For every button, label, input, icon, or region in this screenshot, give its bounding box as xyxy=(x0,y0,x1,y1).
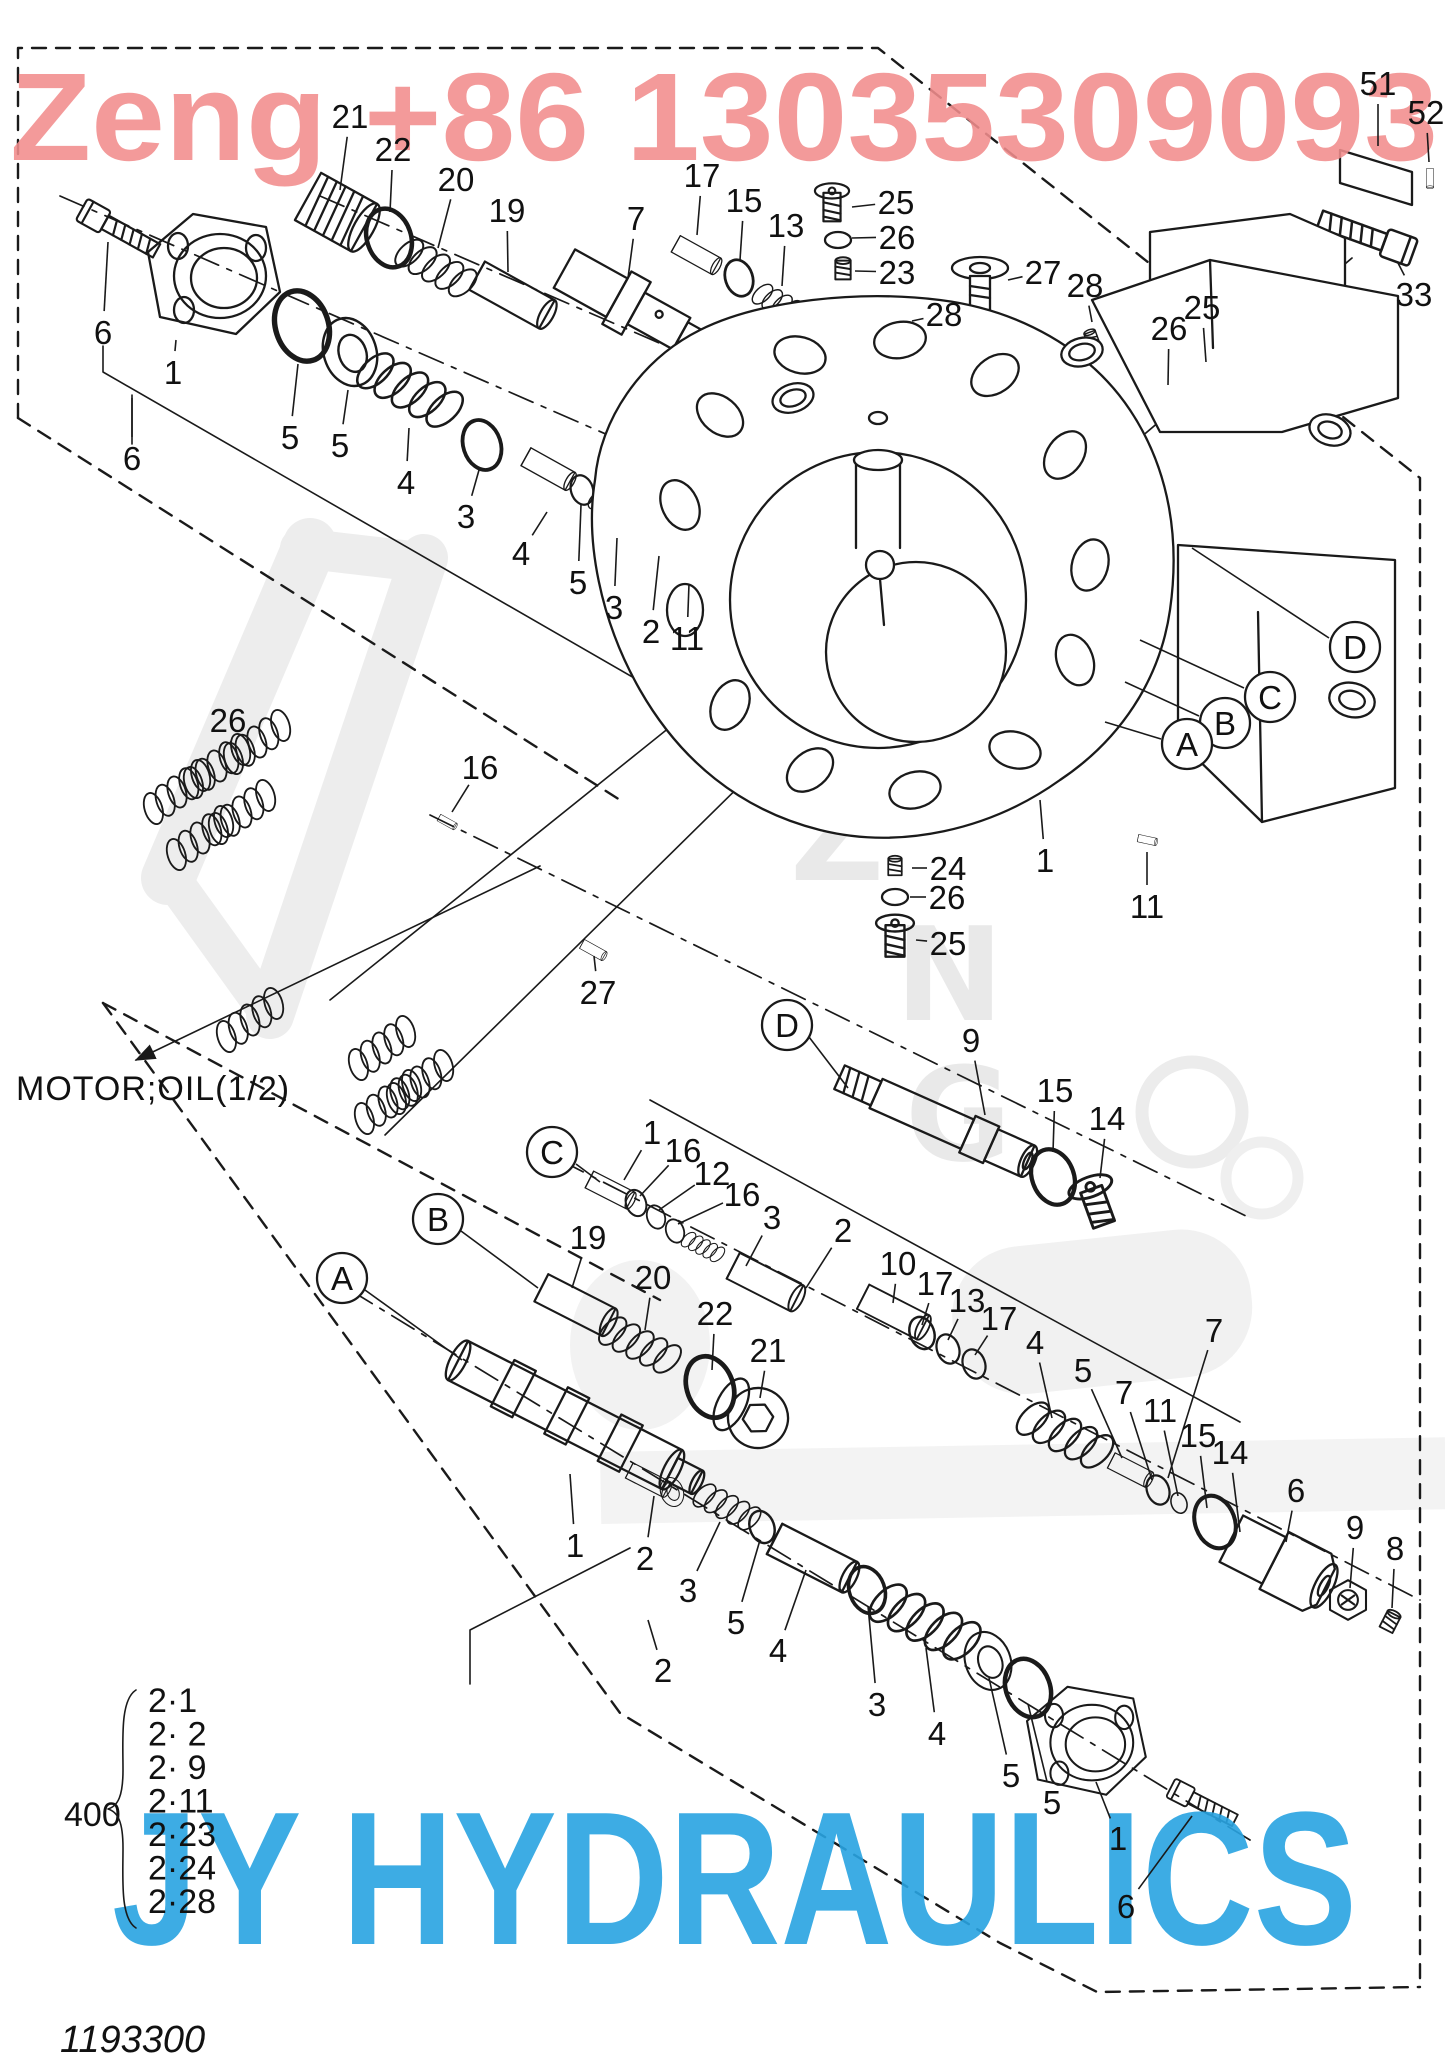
part-label-6: 6 xyxy=(94,314,112,351)
part-label-1: 1 xyxy=(1036,842,1054,879)
motor-oil-label: MOTOR;OIL(1/2) xyxy=(16,1070,290,1108)
part-label-51: 51 xyxy=(1360,65,1397,102)
part-label-26: 26 xyxy=(929,879,966,916)
part-label-15: 15 xyxy=(726,182,763,219)
leader-line-6 xyxy=(104,242,108,311)
leader-line-23 xyxy=(855,271,876,272)
part-label-26: 26 xyxy=(1151,310,1188,347)
leader-line-B xyxy=(461,1231,538,1288)
part-label-1: 1 xyxy=(1109,1820,1127,1857)
part-label-1: 1 xyxy=(566,1527,584,1564)
part-label-5: 5 xyxy=(1043,1784,1061,1821)
leader-line-4 xyxy=(926,1648,934,1712)
leader-line-19 xyxy=(507,231,508,272)
ghost-letter-g: G xyxy=(905,1039,1012,1191)
leader-line-25 xyxy=(852,204,875,207)
part-label-20: 20 xyxy=(438,161,475,198)
pin-16 xyxy=(437,814,458,830)
spring-20 xyxy=(388,230,485,307)
plug-25a xyxy=(815,183,849,221)
nut-9 xyxy=(1330,1580,1366,1620)
leader-line-2 xyxy=(806,1248,832,1288)
view-label-D: D xyxy=(775,1007,799,1044)
leader-line-21 xyxy=(760,1371,765,1398)
leader-line-27 xyxy=(594,956,596,971)
leader-line-28 xyxy=(1089,306,1092,322)
part-label-22: 22 xyxy=(697,1295,734,1332)
part-label-14: 14 xyxy=(1212,1434,1249,1471)
part-label-5: 5 xyxy=(569,564,587,601)
cap-17 xyxy=(671,236,724,277)
part-label-20: 20 xyxy=(635,1259,672,1296)
leader-line-A xyxy=(365,1290,462,1360)
part-label-28: 28 xyxy=(1067,267,1104,304)
part-label-4: 4 xyxy=(512,535,530,572)
leader-line-2 xyxy=(648,1620,657,1650)
leader-line-4 xyxy=(532,512,547,535)
part-label-6: 6 xyxy=(1287,1472,1305,1509)
ref-item-4: 2·23 xyxy=(148,1816,216,1854)
part-label-11: 11 xyxy=(1130,888,1164,925)
leader-line-10 xyxy=(893,1284,895,1303)
part-label-4: 4 xyxy=(769,1632,787,1669)
ref-item-0: 2·1 xyxy=(148,1682,197,1720)
leader-line-20 xyxy=(438,199,451,248)
leader-line-16 xyxy=(452,785,469,812)
ref-group-items: 2·12· 22· 92·112·232·242·28 xyxy=(148,1682,216,1921)
leader-line-3 xyxy=(746,1236,762,1266)
part-label-52: 52 xyxy=(1408,94,1445,131)
part-label-25: 25 xyxy=(878,184,915,221)
parts-diagram-page: Z N G xyxy=(0,0,1445,2064)
leader-line-16 xyxy=(678,1203,723,1224)
screw-8 xyxy=(1380,1608,1402,1633)
o-ring-5d xyxy=(997,1652,1059,1723)
ref-item-2: 2· 9 xyxy=(148,1749,207,1787)
o-ring-26a xyxy=(825,232,851,248)
ref-item-6: 2·28 xyxy=(148,1883,216,1921)
bottom-watermark-text: JY HYDRAULICS xyxy=(112,1773,1357,1985)
part-label-21: 21 xyxy=(750,1332,787,1369)
part-label-1: 1 xyxy=(164,354,182,391)
motor-housing xyxy=(592,214,1398,838)
part-label-9: 9 xyxy=(1346,1509,1364,1546)
top-watermark-text: Zeng +86 13035309093 xyxy=(10,48,1438,187)
part-label-7: 7 xyxy=(1115,1374,1133,1411)
spring-4c xyxy=(859,1572,990,1673)
part-label-4: 4 xyxy=(397,464,415,501)
leader-line-26 xyxy=(1168,349,1169,385)
leader-line-1 xyxy=(624,1150,641,1180)
leader-line-5 xyxy=(292,364,298,416)
leader-line-12 xyxy=(659,1185,695,1210)
ref-item-1: 2· 2 xyxy=(148,1716,207,1754)
washer-5c xyxy=(957,1625,1020,1696)
leader-line-D xyxy=(809,1037,848,1088)
part-label-17: 17 xyxy=(981,1300,1018,1337)
part-label-25: 25 xyxy=(930,925,967,962)
part-label-7: 7 xyxy=(627,200,645,237)
part-label-6: 6 xyxy=(1117,1888,1135,1925)
ref-item-5: 2·24 xyxy=(148,1850,216,1888)
part-label-6: 6 xyxy=(123,440,141,477)
spring-26g xyxy=(337,1009,427,1087)
part-label-17: 17 xyxy=(684,157,721,194)
leader-line-1 xyxy=(570,1474,574,1524)
part-label-2: 2 xyxy=(642,613,660,650)
set-screw-24 xyxy=(888,856,902,876)
part-label-2: 2 xyxy=(636,1540,654,1577)
part-label-11: 11 xyxy=(1143,1392,1177,1429)
leader-line-15 xyxy=(1053,1111,1054,1152)
set-screw-23 xyxy=(835,257,850,279)
part-label-3: 3 xyxy=(868,1686,886,1723)
part-label-15: 15 xyxy=(1037,1072,1074,1109)
ring-3 xyxy=(456,415,507,475)
part-label-1: 1 xyxy=(643,1114,661,1151)
o-ring-26c xyxy=(882,889,908,905)
leader-line-3 xyxy=(472,470,479,496)
o-ring-15 xyxy=(720,256,757,300)
part-label-9: 9 xyxy=(962,1022,980,1059)
part-label-16: 16 xyxy=(724,1176,761,1213)
leader-line-27 xyxy=(1008,277,1023,280)
part-label-7: 7 xyxy=(1205,1312,1223,1349)
leader-line-4 xyxy=(407,428,409,461)
part-label-28: 28 xyxy=(926,296,963,333)
valve-2c xyxy=(727,1253,809,1314)
part-label-19: 19 xyxy=(489,192,526,229)
view-label-A: A xyxy=(1176,726,1198,763)
leader-line-26 xyxy=(852,237,876,238)
part-label-16: 16 xyxy=(462,749,499,786)
ring-16a xyxy=(622,1187,650,1219)
leader-line-1 xyxy=(175,340,176,351)
part-label-27: 27 xyxy=(1025,254,1062,291)
part-label-22: 22 xyxy=(375,131,412,168)
leader-line-16 xyxy=(640,1165,669,1196)
leader-line-3 xyxy=(697,1522,720,1571)
view-label-C: C xyxy=(1258,679,1282,716)
part-label-4: 4 xyxy=(1026,1324,1044,1361)
part-label-25: 25 xyxy=(1184,289,1221,326)
part-label-26: 26 xyxy=(879,219,916,256)
part-label-2: 2 xyxy=(654,1652,672,1689)
ghost-letter-n: N xyxy=(895,899,1004,1051)
part-label-5: 5 xyxy=(727,1604,745,1641)
view-label-B: B xyxy=(427,1201,449,1238)
part-label-10: 10 xyxy=(880,1245,917,1282)
parts-diagram-svg: Z N G xyxy=(0,0,1445,2064)
ref-item-3: 2·11 xyxy=(148,1783,214,1821)
part-label-27: 27 xyxy=(580,974,617,1011)
part-label-3: 3 xyxy=(763,1199,781,1236)
view-label-C: C xyxy=(540,1134,564,1171)
part-label-5: 5 xyxy=(1074,1352,1092,1389)
view-label-D: D xyxy=(1343,629,1367,666)
pin-11b xyxy=(1137,834,1158,845)
part-label-3: 3 xyxy=(679,1572,697,1609)
leader-line-13 xyxy=(782,246,785,286)
leader-line-4 xyxy=(785,1570,806,1630)
part-label-14: 14 xyxy=(1089,1100,1126,1137)
leader-line-22 xyxy=(712,1334,714,1370)
leader-line-8 xyxy=(1392,1569,1394,1608)
part-label-3: 3 xyxy=(605,589,623,626)
leader-line-25 xyxy=(916,940,927,941)
ref-group-number: 400 xyxy=(64,1796,121,1834)
part-label-21: 21 xyxy=(332,98,369,135)
view-label-A: A xyxy=(331,1260,353,1297)
part-label-4: 4 xyxy=(928,1715,946,1752)
part-label-5: 5 xyxy=(281,419,299,456)
leader-line-5 xyxy=(579,505,581,561)
part-label-26: 26 xyxy=(210,702,247,739)
part-label-2: 2 xyxy=(834,1212,852,1249)
leader-line-5 xyxy=(742,1540,760,1602)
leader-line-1 xyxy=(1040,800,1043,839)
leader-line-19 xyxy=(572,1257,582,1288)
flange-1 xyxy=(148,214,280,334)
part-label-13: 13 xyxy=(768,207,805,244)
manifold-upper-block xyxy=(1092,260,1398,432)
part-label-19: 19 xyxy=(570,1219,607,1256)
part-label-33: 33 xyxy=(1396,276,1433,313)
view-label-B: B xyxy=(1214,705,1236,742)
part-label-8: 8 xyxy=(1386,1530,1404,1567)
leader-line-6 xyxy=(1286,1511,1292,1542)
part-label-11: 11 xyxy=(670,620,704,657)
part-label-23: 23 xyxy=(879,254,916,291)
sleeve-19 xyxy=(469,262,560,332)
doc-number: 1193300 xyxy=(60,2019,205,2061)
leader-line-17 xyxy=(697,196,700,235)
part-label-5: 5 xyxy=(331,427,349,464)
leader-line-15 xyxy=(740,221,743,260)
leader-line-5 xyxy=(343,390,348,424)
part-label-3: 3 xyxy=(457,498,475,535)
part-label-5: 5 xyxy=(1002,1757,1020,1794)
